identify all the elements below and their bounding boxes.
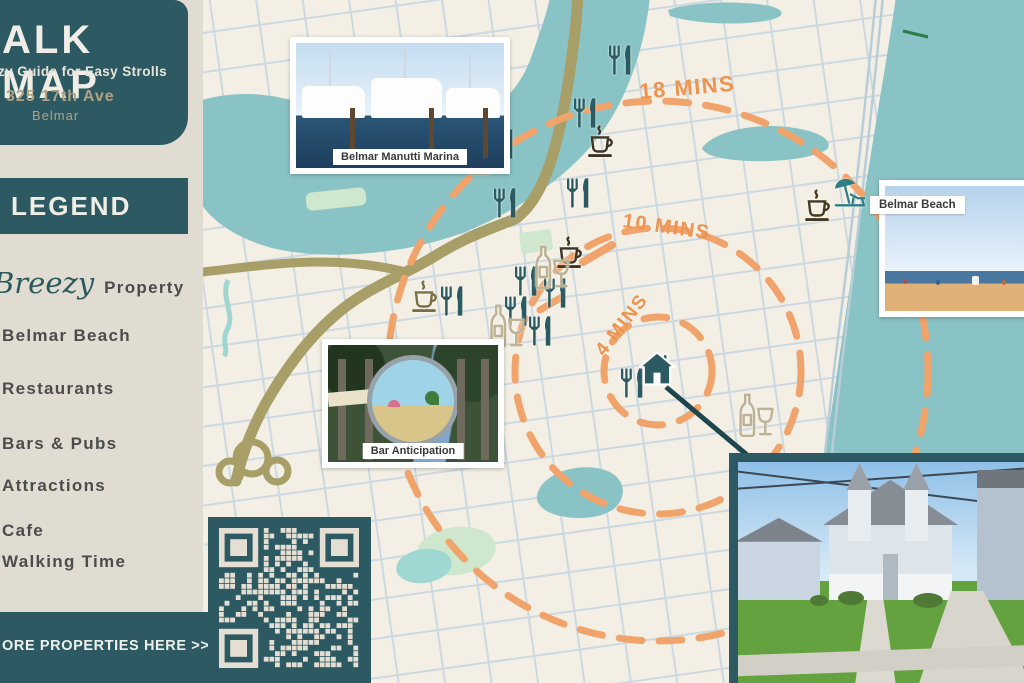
walk-map-poster: 4 MINS10 MINS18 MINS Belmar Manutti Mari…	[0, 0, 1024, 683]
inset-caption-bar: Bar Anticipation	[363, 443, 464, 459]
cup-icon	[414, 282, 436, 311]
legend-item-belmar-beach: Belmar Beach	[2, 326, 131, 346]
north-pond	[668, 3, 782, 24]
qr-code	[208, 517, 371, 683]
silver-lake	[702, 126, 829, 161]
main-house	[829, 524, 953, 600]
fork-icon	[441, 286, 462, 315]
more-properties-link[interactable]: ORE PROPERTIES HERE >>	[2, 638, 209, 654]
umbrella-shape	[388, 400, 400, 407]
legend-title: LEGEND	[0, 178, 188, 234]
ring-label: 10 MINS	[621, 210, 712, 244]
legend-item-restaurants: Restaurants	[2, 379, 115, 399]
fork-icon	[567, 178, 588, 207]
property-address: 325 17th Ave	[6, 88, 115, 106]
legend-item-cafe: Cafe	[2, 521, 44, 541]
walk-map-header: ALK MAP zy Guide for Easy Strolls 325 17…	[0, 0, 188, 145]
house-icon	[640, 353, 675, 385]
neighbor-house-right	[977, 486, 1024, 600]
fork-icon	[621, 368, 642, 397]
legend-item-walking-time: Walking Time	[2, 552, 126, 572]
page-subtitle: zy Guide for Easy Strolls	[0, 64, 167, 79]
property-photo-frame	[729, 453, 1024, 683]
brand-logo: Breezy	[0, 266, 94, 300]
legend-item-attractions: Attractions	[2, 476, 106, 496]
boat	[446, 88, 500, 118]
fork-icon	[515, 266, 536, 295]
legend-sidebar: ALK MAP zy Guide for Easy Strolls 325 17…	[0, 0, 203, 612]
inset-caption-beach: Belmar Beach	[870, 196, 965, 214]
palm-icon	[425, 391, 439, 405]
inset-caption-marina: Belmar Manutti Marina	[333, 149, 467, 165]
inset-photo-bar: Bar Anticipation	[322, 339, 504, 468]
property-city: Belmar	[32, 108, 79, 123]
boat	[302, 86, 364, 119]
south-pond	[537, 467, 623, 518]
inset-photo-beach: Belmar Beach	[879, 180, 1024, 317]
legend-item-property: BreezyProperty	[0, 266, 184, 300]
legend-item-bars-pubs: Bars & Pubs	[2, 434, 117, 454]
bar-sign	[367, 355, 459, 447]
ring-label: 18 MINS	[638, 71, 736, 104]
property-photo	[738, 462, 1024, 683]
cup-icon	[807, 191, 829, 220]
inset-photo-marina: Belmar Manutti Marina	[290, 37, 510, 174]
neighbor-house-left	[738, 541, 820, 601]
marina-photo: Belmar Manutti Marina	[296, 43, 504, 168]
bar-photo: Bar Anticipation	[328, 345, 498, 462]
